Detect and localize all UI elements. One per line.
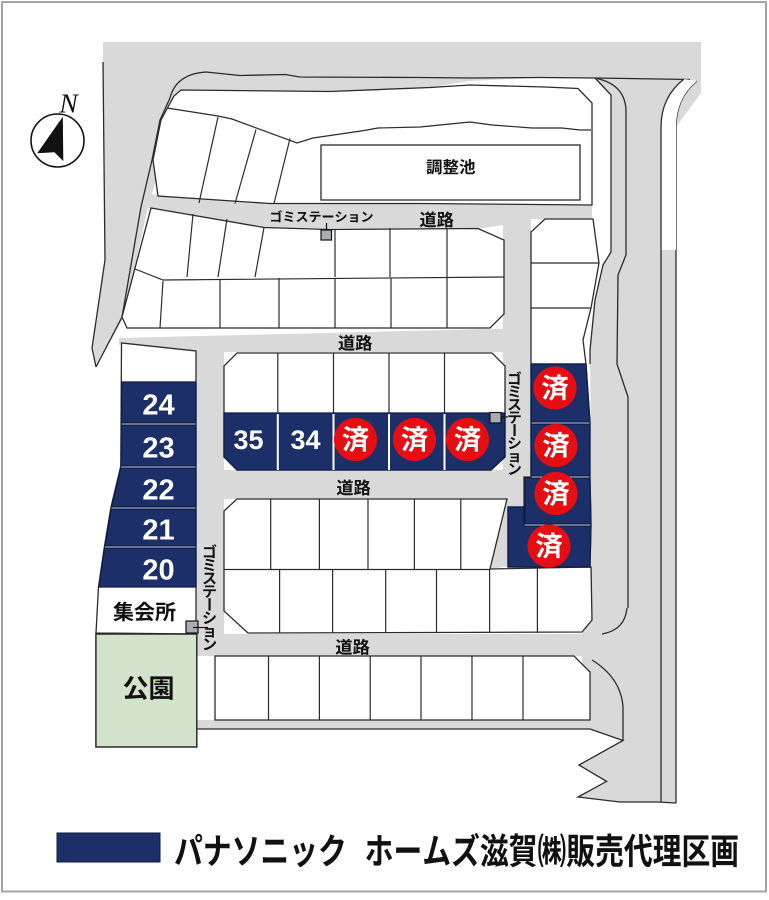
svg-text:24: 24 — [142, 389, 174, 421]
svg-text:N: N — [58, 88, 79, 119]
svg-text:22: 22 — [142, 475, 174, 507]
svg-text:20: 20 — [142, 555, 174, 587]
svg-text:23: 23 — [142, 433, 174, 465]
svg-text:21: 21 — [142, 515, 174, 547]
svg-text:34: 34 — [290, 425, 320, 455]
svg-text:35: 35 — [233, 425, 263, 455]
